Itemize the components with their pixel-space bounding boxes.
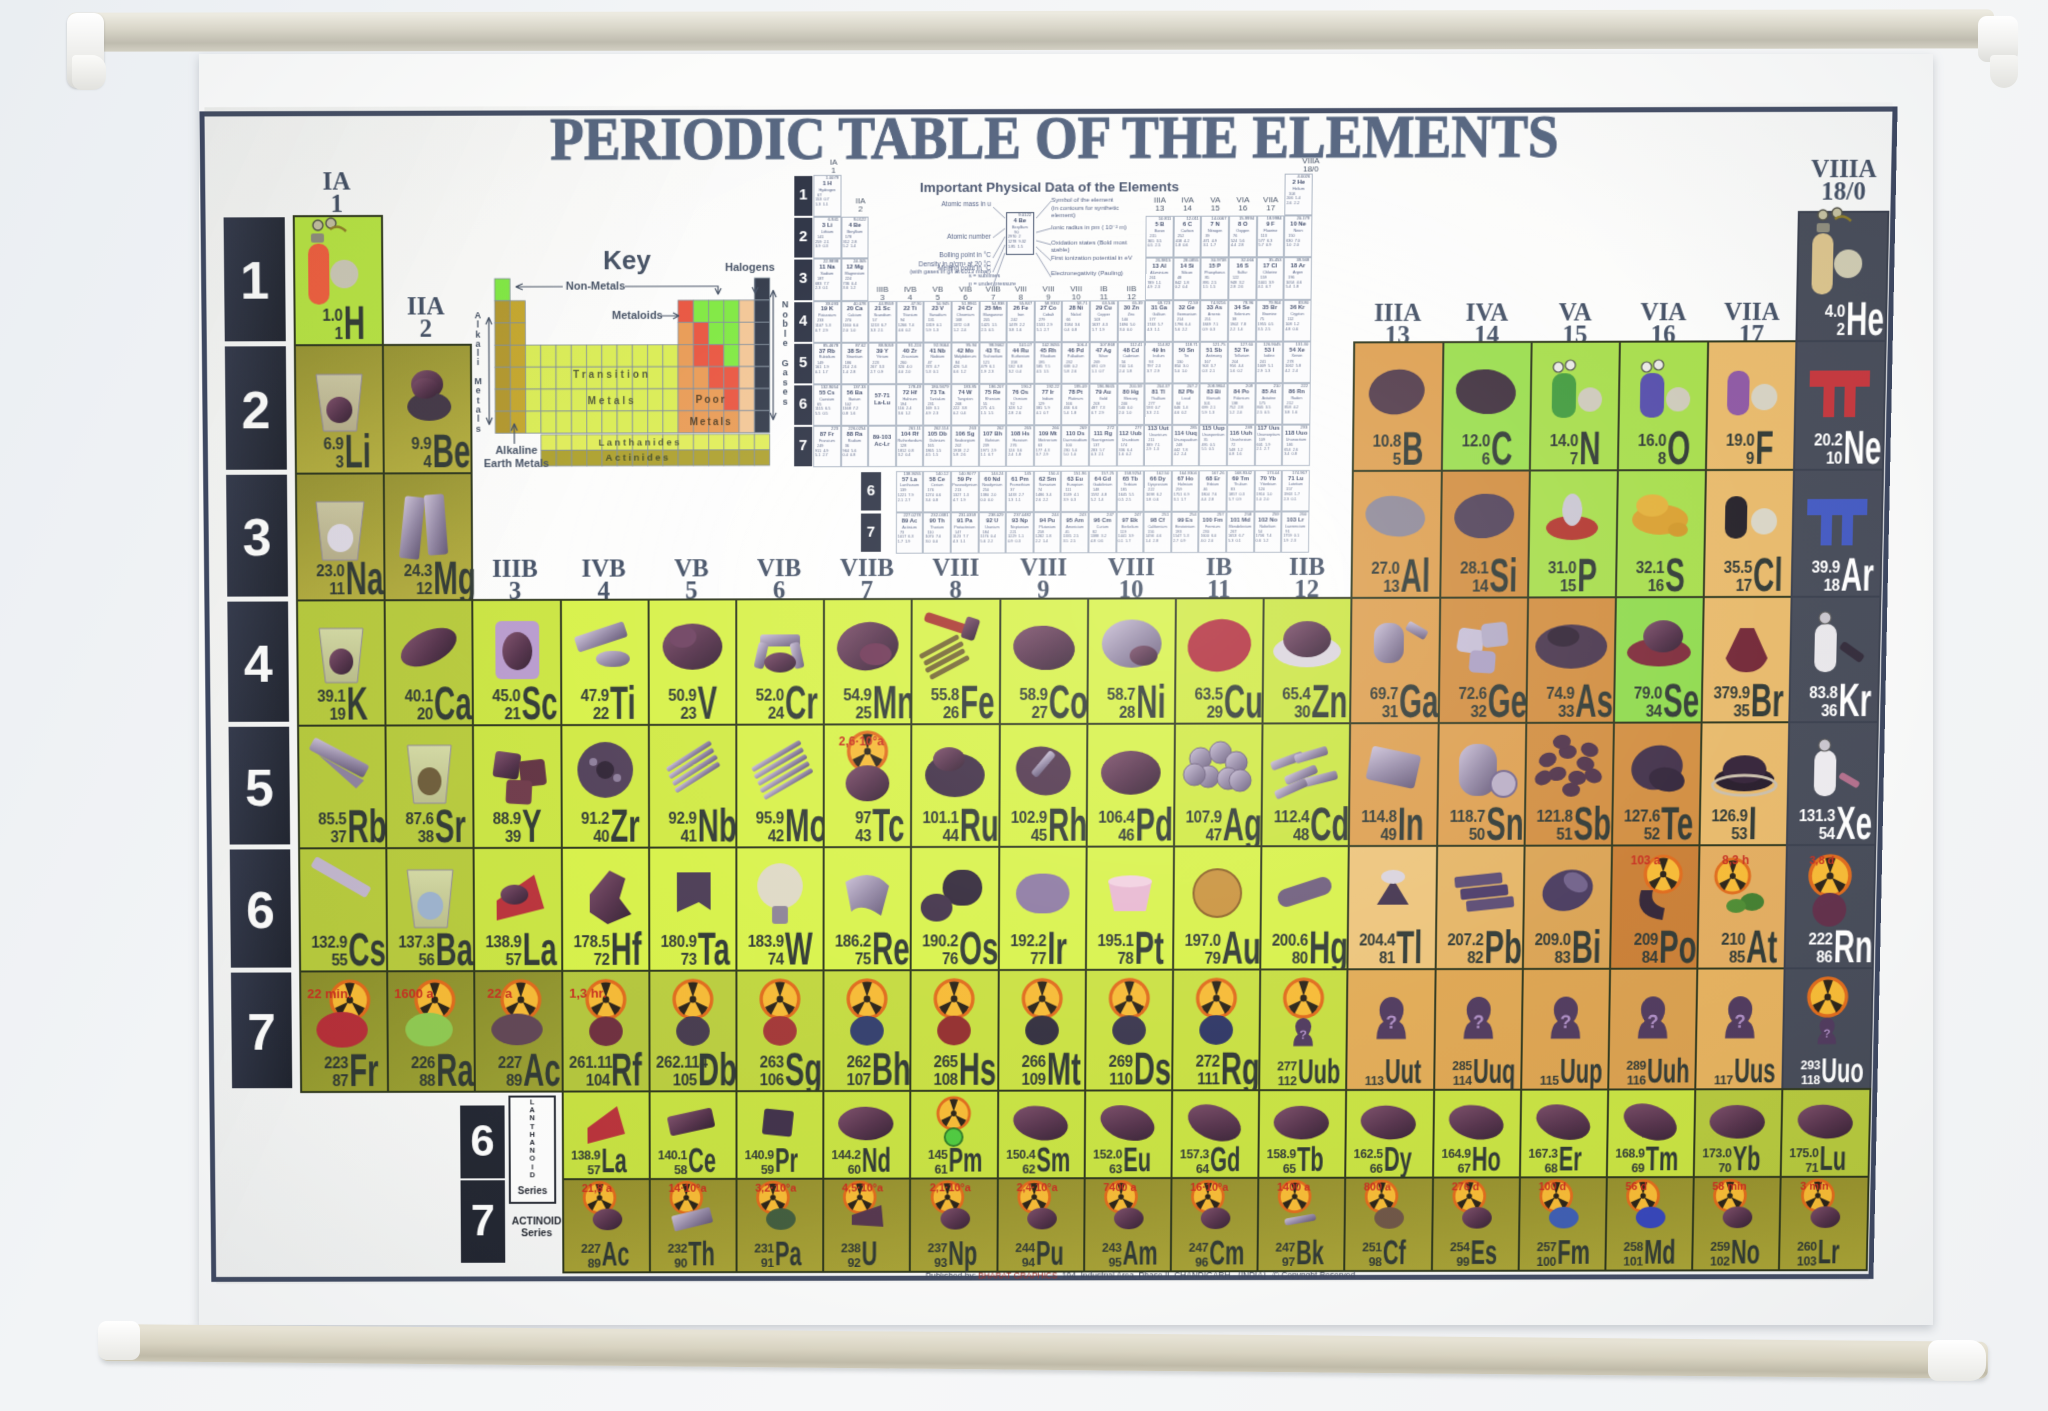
- svg-text:103 a: 103 a: [1631, 854, 1661, 868]
- svg-text:4,5·10°a: 4,5·10°a: [842, 1183, 884, 1195]
- svg-text:2,6·10°a: 2,6·10°a: [839, 735, 884, 749]
- svg-text:3,2·10°a: 3,2·10°a: [755, 1183, 797, 1195]
- svg-text:100 d: 100 d: [1538, 1181, 1566, 1193]
- svg-text:1,3 hr.: 1,3 hr.: [569, 986, 606, 1001]
- svg-text:7400 a: 7400 a: [1103, 1182, 1137, 1194]
- svg-text:21,8 a: 21,8 a: [582, 1183, 613, 1195]
- svg-text:22 min.: 22 min.: [307, 986, 351, 1001]
- svg-text:14·10°a: 14·10°a: [668, 1183, 707, 1195]
- svg-text:3 min: 3 min: [1800, 1181, 1829, 1193]
- svg-text:2,1·10°a: 2,1·10°a: [930, 1183, 972, 1195]
- svg-text:1600 a: 1600 a: [394, 986, 434, 1001]
- svg-text:16·10°a: 16·10°a: [1190, 1182, 1229, 1194]
- svg-text:1400 a: 1400 a: [1277, 1182, 1311, 1194]
- svg-text:3,8 d: 3,8 d: [1809, 855, 1834, 867]
- svg-text:276 d: 276 d: [1452, 1182, 1480, 1194]
- svg-text:58 min: 58 min: [1712, 1181, 1747, 1193]
- svg-text:56 d: 56 d: [1625, 1181, 1647, 1193]
- svg-text:800 a: 800 a: [1364, 1182, 1392, 1194]
- svg-text:8,3 h: 8,3 h: [1722, 853, 1749, 867]
- svg-text:2,4·10°a: 2,4·10°a: [1017, 1182, 1059, 1194]
- svg-text:22 a: 22 a: [487, 986, 513, 1001]
